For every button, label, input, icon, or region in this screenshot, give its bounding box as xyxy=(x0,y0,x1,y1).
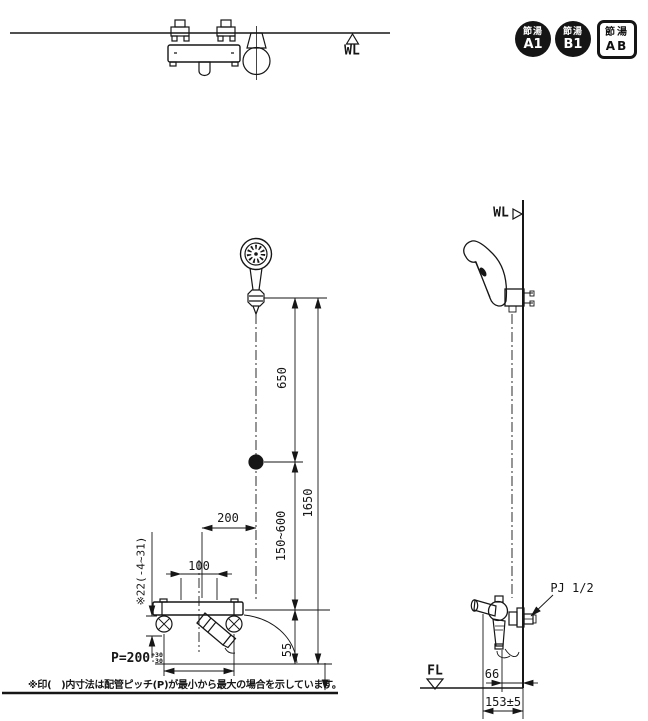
dim-55: 55 xyxy=(281,643,293,657)
eco-badge-a1-grade: A1 xyxy=(523,38,542,51)
side-view-wl-label: WL xyxy=(493,207,509,220)
dim-1650: 1650 xyxy=(302,489,314,518)
eco-badge-a1-text: 節湯 xyxy=(523,28,543,37)
eco-badge-b1-text: 節湯 xyxy=(563,28,583,37)
eco-badge-b1: 節湯 B1 xyxy=(555,21,591,57)
eco-badge-ab-text: 節湯 xyxy=(605,28,629,38)
dim-100: 100 xyxy=(188,560,210,572)
top-view-drawing xyxy=(10,20,390,80)
technical-drawing xyxy=(0,0,648,721)
pitch-tolerance: +30 -30 xyxy=(151,652,163,665)
pitch-tolerance-lower: -30 xyxy=(151,658,163,665)
side-view-fl-label: FL xyxy=(427,665,443,678)
dim-spout-offset: ※22(-4~31) xyxy=(136,537,147,606)
dim-650: 650 xyxy=(276,367,288,389)
eco-badge-b1-grade: B1 xyxy=(564,38,583,51)
pipe-joint-label: PJ 1/2 xyxy=(550,582,593,594)
spec-drawing-page: WL 節湯 A1 節湯 B1 節湯 AB 650 1650 150~600 55… xyxy=(0,0,648,721)
front-view-drawing xyxy=(2,239,338,694)
pitch-value: P=200 xyxy=(111,651,150,666)
top-view-wl-label: WL xyxy=(344,45,360,58)
pitch-dimension-label: P=200 +30 -30 xyxy=(111,649,163,667)
dim-200: 200 xyxy=(217,512,239,524)
dim-66: 66 xyxy=(485,668,499,680)
dim-153: 153±5 xyxy=(485,696,521,708)
eco-badge-a1: 節湯 A1 xyxy=(515,21,551,57)
side-view-drawing xyxy=(420,200,553,719)
eco-badge-ab: 節湯 AB xyxy=(597,20,637,59)
footnote-text: ※印( )内寸法は配管ピッチ(P)が最小から最大の場合を示しています。 xyxy=(28,676,342,691)
dim-150-600: 150~600 xyxy=(275,511,287,562)
eco-badge-ab-grade: AB xyxy=(606,40,628,52)
